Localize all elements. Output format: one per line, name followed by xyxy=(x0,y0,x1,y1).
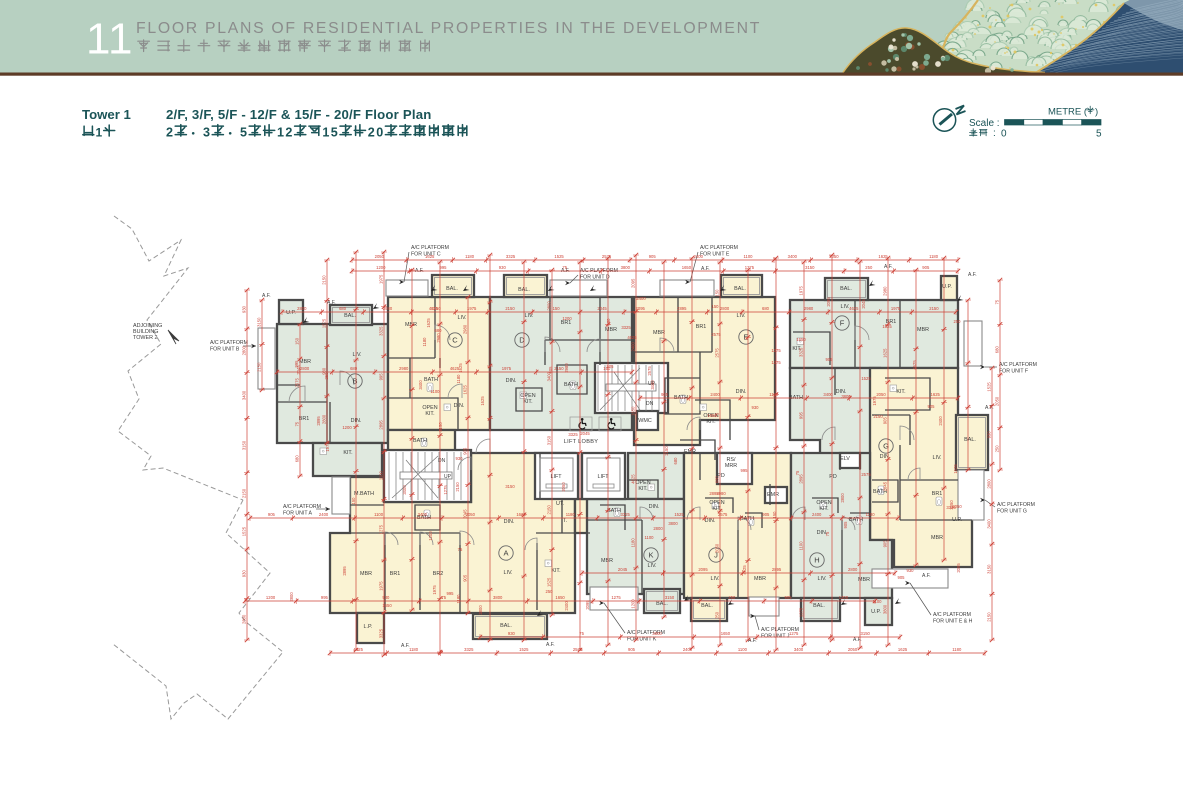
svg-text:A.F.: A.F. xyxy=(922,573,931,579)
svg-text:75: 75 xyxy=(795,470,800,475)
svg-text:2045: 2045 xyxy=(883,481,888,491)
svg-text:2800: 2800 xyxy=(242,345,247,355)
svg-text:2050: 2050 xyxy=(715,543,720,553)
svg-text:M.BATH: M.BATH xyxy=(354,491,374,497)
svg-text:1525: 1525 xyxy=(861,376,871,381)
svg-text:1180: 1180 xyxy=(465,254,475,259)
svg-text:2150: 2150 xyxy=(505,306,515,311)
svg-text:3325: 3325 xyxy=(799,347,804,357)
svg-text:680: 680 xyxy=(350,366,358,371)
svg-text:680: 680 xyxy=(606,318,611,326)
svg-text:1625: 1625 xyxy=(463,384,468,394)
svg-text:3: 3 xyxy=(203,126,210,140)
svg-text:DIN.: DIN. xyxy=(506,378,517,384)
svg-text:150: 150 xyxy=(712,304,720,309)
svg-text:3400: 3400 xyxy=(650,380,655,390)
svg-text:3150: 3150 xyxy=(861,631,871,636)
svg-text:0: 0 xyxy=(376,126,383,140)
svg-text:1100: 1100 xyxy=(644,535,654,540)
svg-text:2575: 2575 xyxy=(711,332,721,337)
svg-text:LIV.: LIV. xyxy=(457,315,466,321)
svg-text:LIFT LOBBY: LIFT LOBBY xyxy=(564,439,599,445)
svg-text:U.P.: U.P. xyxy=(871,609,881,615)
svg-text:2800: 2800 xyxy=(322,414,327,424)
svg-text:A/C PLATFORM: A/C PLATFORM xyxy=(283,504,321,510)
svg-text:2095: 2095 xyxy=(956,563,961,573)
svg-text:150: 150 xyxy=(351,497,356,505)
svg-text:995: 995 xyxy=(741,468,749,473)
svg-text:2150: 2150 xyxy=(242,488,247,498)
svg-text:930: 930 xyxy=(456,456,464,461)
svg-text:UP: UP xyxy=(444,474,452,480)
svg-text:930: 930 xyxy=(508,631,516,636)
svg-text:BAL.: BAL. xyxy=(734,286,746,292)
svg-text:3325: 3325 xyxy=(621,512,631,517)
svg-text:995: 995 xyxy=(321,595,329,600)
svg-text:BAL.: BAL. xyxy=(840,286,852,292)
svg-text:1650: 1650 xyxy=(682,265,692,270)
svg-text:1650: 1650 xyxy=(796,337,806,342)
svg-text:905: 905 xyxy=(883,540,888,548)
svg-text:MRR: MRR xyxy=(725,463,737,469)
svg-text:2: 2 xyxy=(368,126,375,140)
svg-text:1275: 1275 xyxy=(611,595,621,600)
svg-text:75: 75 xyxy=(458,547,463,552)
svg-text:MBR: MBR xyxy=(299,359,311,365)
svg-text:KIT.: KIT. xyxy=(638,486,647,492)
svg-text:1275: 1275 xyxy=(771,360,781,365)
svg-text:A/C PLATFORM: A/C PLATFORM xyxy=(700,245,738,251)
svg-text:LIV.: LIV. xyxy=(647,563,656,569)
svg-text:3800: 3800 xyxy=(841,394,851,399)
svg-text:1625: 1625 xyxy=(458,363,463,373)
svg-text:2980: 2980 xyxy=(564,363,569,373)
svg-text:2400: 2400 xyxy=(812,512,822,517)
svg-text:KIT.: KIT. xyxy=(343,450,352,456)
svg-text:2895: 2895 xyxy=(772,567,782,572)
svg-text:2050: 2050 xyxy=(375,254,385,259)
svg-text:BAL.: BAL. xyxy=(701,603,713,609)
svg-text:FOR UNIT F: FOR UNIT F xyxy=(999,369,1028,375)
svg-text:MBR: MBR xyxy=(605,327,617,333)
svg-text:KIT.: KIT. xyxy=(551,568,560,574)
svg-text:75: 75 xyxy=(562,265,567,270)
svg-text:905: 905 xyxy=(268,512,276,517)
svg-text:1525: 1525 xyxy=(674,512,684,517)
svg-text:3150: 3150 xyxy=(242,440,247,450)
svg-text:1625: 1625 xyxy=(426,318,431,328)
svg-text:MBR: MBR xyxy=(601,558,613,564)
svg-text:1525: 1525 xyxy=(322,318,327,328)
svg-text:MBR: MBR xyxy=(360,571,372,577)
svg-text:1100: 1100 xyxy=(430,389,440,394)
svg-text:2800: 2800 xyxy=(840,493,845,503)
svg-text:75: 75 xyxy=(995,299,1000,304)
svg-text:FOR UNIT A: FOR UNIT A xyxy=(283,511,313,517)
svg-text:1180: 1180 xyxy=(952,647,962,652)
svg-text:680: 680 xyxy=(995,346,1000,354)
svg-text:1180: 1180 xyxy=(422,337,427,347)
svg-text:EMR: EMR xyxy=(767,492,779,498)
svg-text:2095: 2095 xyxy=(698,567,708,572)
svg-text:BR1: BR1 xyxy=(696,324,707,330)
svg-text:1100: 1100 xyxy=(866,512,876,517)
svg-text:BATH: BATH xyxy=(564,382,578,388)
svg-text:FOR UNIT D: FOR UNIT D xyxy=(580,275,610,281)
svg-text:1200: 1200 xyxy=(631,599,636,609)
svg-text:1180: 1180 xyxy=(929,254,939,259)
svg-text:1975: 1975 xyxy=(325,442,330,452)
svg-text:2800: 2800 xyxy=(653,526,663,531)
svg-text:680: 680 xyxy=(673,457,678,465)
svg-text:0: 0 xyxy=(1001,129,1007,140)
svg-text:905: 905 xyxy=(826,357,834,362)
svg-text:U.P.: U.P. xyxy=(942,284,952,290)
svg-text:1180: 1180 xyxy=(409,647,419,652)
svg-text:3150: 3150 xyxy=(257,317,262,327)
svg-text:1975: 1975 xyxy=(467,306,477,311)
svg-text:905: 905 xyxy=(607,364,615,369)
svg-text:905: 905 xyxy=(762,512,770,517)
svg-text:930: 930 xyxy=(499,265,507,270)
svg-text:1200: 1200 xyxy=(376,265,386,270)
svg-text:1975: 1975 xyxy=(799,285,804,295)
svg-text:DN: DN xyxy=(438,458,446,464)
svg-text:1625: 1625 xyxy=(425,254,435,259)
svg-text:1625: 1625 xyxy=(480,396,485,406)
svg-text:2050: 2050 xyxy=(876,392,886,397)
svg-text:1100: 1100 xyxy=(743,254,753,259)
svg-text:2895: 2895 xyxy=(316,416,321,426)
svg-text:3325: 3325 xyxy=(506,254,516,259)
svg-text:1180: 1180 xyxy=(631,538,636,548)
svg-text:): ) xyxy=(1095,107,1098,118)
svg-text:905: 905 xyxy=(898,575,906,580)
svg-text:3400: 3400 xyxy=(794,647,804,652)
svg-text:2980: 2980 xyxy=(883,286,888,296)
svg-text:2895: 2895 xyxy=(342,566,347,576)
svg-text:1650: 1650 xyxy=(555,595,565,600)
svg-text:905: 905 xyxy=(928,404,936,409)
svg-text:2045: 2045 xyxy=(618,567,628,572)
svg-text:4625: 4625 xyxy=(912,360,917,370)
svg-text:KIT.: KIT. xyxy=(425,411,434,417)
svg-text:680: 680 xyxy=(715,475,720,483)
svg-text:905: 905 xyxy=(922,265,930,270)
svg-text:905: 905 xyxy=(548,366,553,374)
svg-text:MBR: MBR xyxy=(653,330,665,336)
svg-text:2575: 2575 xyxy=(861,472,871,477)
svg-text:905: 905 xyxy=(649,254,657,259)
svg-text:3400: 3400 xyxy=(418,512,428,517)
svg-text::: : xyxy=(993,128,996,139)
svg-text:930: 930 xyxy=(987,431,992,439)
svg-text:3150: 3150 xyxy=(505,484,515,489)
svg-text:1275: 1275 xyxy=(799,607,804,617)
svg-text:2150: 2150 xyxy=(455,482,460,492)
svg-text:U.P.: U.P. xyxy=(952,517,962,523)
svg-text:1100: 1100 xyxy=(379,470,384,480)
svg-text:1: 1 xyxy=(277,126,284,140)
svg-text:2150: 2150 xyxy=(987,612,992,622)
svg-text:2800: 2800 xyxy=(297,306,307,311)
svg-text:BAL.: BAL. xyxy=(813,603,825,609)
svg-text:1100: 1100 xyxy=(872,599,882,604)
svg-text:3325: 3325 xyxy=(379,326,384,336)
svg-text:2045: 2045 xyxy=(463,509,468,519)
svg-text:UT.: UT. xyxy=(556,501,564,507)
svg-text:1975: 1975 xyxy=(432,585,437,595)
svg-text:2050: 2050 xyxy=(848,647,858,652)
svg-text:3800: 3800 xyxy=(493,595,503,600)
svg-text:905: 905 xyxy=(661,392,669,397)
svg-text:250: 250 xyxy=(715,611,720,619)
svg-text:2400: 2400 xyxy=(636,296,646,301)
svg-text:5: 5 xyxy=(1096,129,1102,140)
svg-text:905: 905 xyxy=(883,417,888,425)
svg-text:2980: 2980 xyxy=(804,306,814,311)
svg-text:1100: 1100 xyxy=(738,647,748,652)
svg-text:1975: 1975 xyxy=(502,366,512,371)
svg-text:KIT.: KIT. xyxy=(523,399,532,405)
svg-text:2/F, 3/F, 5/F - 12/F & 15/F -: 2/F, 3/F, 5/F - 12/F & 15/F - 20/F Floor… xyxy=(166,107,431,122)
svg-text:3325: 3325 xyxy=(946,505,956,510)
svg-text:KIT.: KIT. xyxy=(896,389,905,395)
svg-text:2095: 2095 xyxy=(585,600,590,610)
svg-text:2045: 2045 xyxy=(597,306,607,311)
svg-text:2150: 2150 xyxy=(322,275,327,285)
svg-text:C: C xyxy=(452,336,458,345)
svg-text:1625: 1625 xyxy=(883,348,888,358)
svg-text:DIN.: DIN. xyxy=(705,518,716,524)
svg-text:3400: 3400 xyxy=(402,485,407,495)
svg-text:DIN.: DIN. xyxy=(736,389,747,395)
svg-text:2895: 2895 xyxy=(379,420,384,430)
svg-text:A.F.: A.F. xyxy=(546,642,555,648)
svg-text:FOR UNIT G: FOR UNIT G xyxy=(997,509,1027,515)
svg-text:5: 5 xyxy=(240,126,247,140)
svg-text:2150: 2150 xyxy=(873,414,883,419)
svg-text:905: 905 xyxy=(628,647,636,652)
svg-text:BAL.: BAL. xyxy=(344,313,356,319)
svg-text:KIT.: KIT. xyxy=(819,506,828,512)
svg-text:2575: 2575 xyxy=(718,512,728,517)
svg-text:A.F.: A.F. xyxy=(327,300,336,306)
svg-text:995: 995 xyxy=(379,373,384,381)
svg-text:250: 250 xyxy=(546,589,554,594)
svg-text:FOR UNIT B: FOR UNIT B xyxy=(210,347,240,353)
svg-text:BAL.: BAL. xyxy=(500,623,512,629)
svg-text:FOR UNIT E: FOR UNIT E xyxy=(700,252,730,258)
svg-text:3400: 3400 xyxy=(418,380,423,390)
svg-text:A: A xyxy=(503,549,508,558)
svg-text:3325: 3325 xyxy=(379,628,384,638)
svg-text:H: H xyxy=(814,556,819,565)
svg-text:B: B xyxy=(352,377,357,386)
svg-text:1525: 1525 xyxy=(547,577,552,587)
svg-text:2: 2 xyxy=(285,126,292,140)
svg-text:3800: 3800 xyxy=(668,521,678,526)
svg-text:METRE (: METRE ( xyxy=(1048,107,1088,118)
svg-text:680: 680 xyxy=(295,455,300,463)
svg-text:3325: 3325 xyxy=(621,325,631,330)
svg-text:1525: 1525 xyxy=(882,324,892,329)
svg-text:LIV.: LIV. xyxy=(817,576,826,582)
svg-text:150: 150 xyxy=(772,511,777,519)
svg-text:4625: 4625 xyxy=(742,565,747,575)
svg-text:BR2: BR2 xyxy=(433,571,444,577)
svg-text:2575: 2575 xyxy=(573,647,583,652)
svg-text:2150: 2150 xyxy=(257,362,262,372)
svg-text:905: 905 xyxy=(463,574,468,582)
svg-text:BR1: BR1 xyxy=(932,491,943,497)
svg-text:1180: 1180 xyxy=(566,512,576,517)
svg-text:2800: 2800 xyxy=(547,301,552,311)
svg-text:T.: T. xyxy=(563,518,567,524)
svg-text:DIN.: DIN. xyxy=(504,519,515,525)
svg-text:2400: 2400 xyxy=(938,416,943,426)
svg-text:3800: 3800 xyxy=(652,631,662,636)
svg-text:FOR UNIT J: FOR UNIT J xyxy=(761,634,790,640)
svg-text:LIV.: LIV. xyxy=(932,455,941,461)
svg-text:2800: 2800 xyxy=(289,592,294,602)
svg-text:1975: 1975 xyxy=(872,396,877,406)
svg-text:3400: 3400 xyxy=(242,390,247,400)
svg-text:1975: 1975 xyxy=(891,306,901,311)
svg-text:BAL.: BAL. xyxy=(964,437,976,443)
svg-text:1525: 1525 xyxy=(519,647,529,652)
svg-text:930: 930 xyxy=(242,570,247,578)
svg-text:680: 680 xyxy=(762,306,770,311)
svg-text:WMC: WMC xyxy=(638,418,652,424)
svg-text:995: 995 xyxy=(799,411,804,419)
svg-text:1: 1 xyxy=(322,126,329,140)
svg-text:3400: 3400 xyxy=(987,519,992,529)
svg-text:2800: 2800 xyxy=(987,479,992,489)
svg-text:2980: 2980 xyxy=(399,366,409,371)
svg-text:1200: 1200 xyxy=(428,531,433,541)
svg-text:3325: 3325 xyxy=(464,647,474,652)
svg-text:DIN.: DIN. xyxy=(454,403,465,409)
svg-text:75: 75 xyxy=(825,531,830,536)
svg-text:TOWER 2: TOWER 2 xyxy=(133,335,157,341)
svg-text:250: 250 xyxy=(865,265,873,270)
svg-text:150: 150 xyxy=(553,306,561,311)
svg-text:BATH: BATH xyxy=(413,438,427,444)
svg-text:150: 150 xyxy=(295,337,300,345)
svg-text:4625: 4625 xyxy=(627,335,637,340)
svg-text:1650: 1650 xyxy=(382,603,392,608)
svg-text:75: 75 xyxy=(295,421,300,426)
svg-text:930: 930 xyxy=(242,305,247,313)
svg-text:1975: 1975 xyxy=(379,581,384,591)
svg-text:3800: 3800 xyxy=(883,604,888,614)
svg-text:DN: DN xyxy=(646,401,654,407)
svg-text:4625: 4625 xyxy=(631,474,636,484)
svg-text:2800: 2800 xyxy=(720,306,730,311)
svg-text:FOR UNIT E & H: FOR UNIT E & H xyxy=(933,619,973,625)
svg-text:FOR UNIT K: FOR UNIT K xyxy=(627,637,657,643)
svg-text:F: F xyxy=(840,319,845,328)
svg-text:MBR: MBR xyxy=(917,327,929,333)
svg-text:2150: 2150 xyxy=(547,504,552,514)
svg-text:3800: 3800 xyxy=(478,605,483,615)
svg-text:PD: PD xyxy=(829,474,837,480)
svg-text:3150: 3150 xyxy=(665,595,675,600)
svg-text:A/C PLATFORM: A/C PLATFORM xyxy=(411,245,449,251)
svg-text:5: 5 xyxy=(331,126,338,140)
svg-text:1525: 1525 xyxy=(242,526,247,536)
svg-text:1975: 1975 xyxy=(379,274,384,284)
svg-text:1100: 1100 xyxy=(374,512,384,517)
svg-text:MBR: MBR xyxy=(754,576,766,582)
svg-text:1525: 1525 xyxy=(953,464,958,474)
svg-text:1275: 1275 xyxy=(443,485,448,495)
svg-text:BR1: BR1 xyxy=(390,571,401,577)
svg-text:BAL.: BAL. xyxy=(446,286,458,292)
svg-text:1200: 1200 xyxy=(266,595,276,600)
svg-text:1525: 1525 xyxy=(554,254,564,259)
svg-text:U.P.: U.P. xyxy=(286,310,296,316)
svg-text:3325: 3325 xyxy=(568,432,578,437)
svg-text:150: 150 xyxy=(715,289,720,297)
svg-text:11: 11 xyxy=(86,15,133,64)
svg-text:3400: 3400 xyxy=(788,254,798,259)
svg-text:A/C PLATFORM: A/C PLATFORM xyxy=(933,612,971,618)
svg-text:ELV: ELV xyxy=(840,456,850,462)
svg-text:905: 905 xyxy=(785,595,793,600)
svg-text:LIFT: LIFT xyxy=(597,474,609,480)
svg-text:250: 250 xyxy=(954,319,962,324)
svg-text:3800: 3800 xyxy=(621,265,631,270)
svg-text:2895: 2895 xyxy=(677,306,687,311)
svg-text:2400: 2400 xyxy=(694,254,704,259)
svg-text:2095: 2095 xyxy=(826,297,831,307)
svg-text:1275: 1275 xyxy=(379,524,384,534)
svg-text:2050: 2050 xyxy=(561,482,566,492)
svg-text:BATH: BATH xyxy=(424,377,438,383)
svg-text:L.P.: L.P. xyxy=(364,624,373,630)
svg-text:2045: 2045 xyxy=(580,431,590,436)
svg-text:2575: 2575 xyxy=(295,377,300,387)
svg-text:2150: 2150 xyxy=(929,306,939,311)
svg-text:DIN.: DIN. xyxy=(649,504,660,510)
svg-text:2800: 2800 xyxy=(848,567,858,572)
svg-text:2400: 2400 xyxy=(710,392,720,397)
svg-text:BAL.: BAL. xyxy=(656,601,668,607)
svg-text:2980: 2980 xyxy=(463,324,468,334)
svg-text:1650: 1650 xyxy=(631,406,636,416)
svg-text:2400: 2400 xyxy=(564,601,569,611)
svg-text:1275: 1275 xyxy=(789,631,799,636)
svg-text:930: 930 xyxy=(752,405,760,410)
svg-text:2150: 2150 xyxy=(554,366,564,371)
svg-text:3150: 3150 xyxy=(431,306,441,311)
svg-text:2095: 2095 xyxy=(631,278,636,288)
svg-text:2800: 2800 xyxy=(300,366,310,371)
svg-text:1180: 1180 xyxy=(456,374,461,384)
svg-text:1100: 1100 xyxy=(799,541,804,551)
svg-text:680: 680 xyxy=(339,306,347,311)
svg-text:1625: 1625 xyxy=(931,392,941,397)
svg-text:2575: 2575 xyxy=(647,366,652,376)
svg-text:930: 930 xyxy=(382,595,390,600)
svg-text:LIV.: LIV. xyxy=(736,313,745,319)
svg-text:995: 995 xyxy=(440,265,448,270)
svg-text:4625: 4625 xyxy=(849,306,859,311)
svg-text:A/C PLATFORM: A/C PLATFORM xyxy=(997,502,1035,508)
svg-text:2800: 2800 xyxy=(242,614,247,624)
